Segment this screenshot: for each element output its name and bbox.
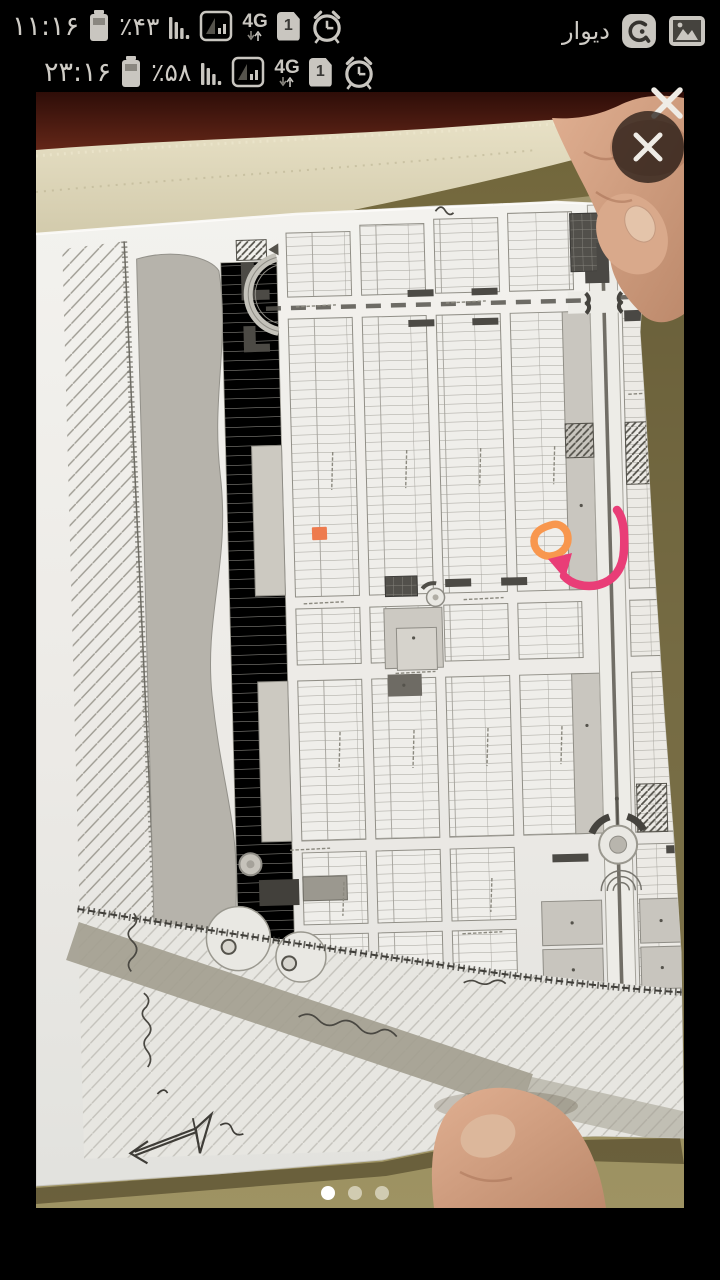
map-left-roundabout (239, 853, 262, 876)
data-arrows-icon (247, 31, 263, 41)
inner-sim2-signal-icon (231, 56, 265, 88)
inner-sim-slot-number: 1 (316, 63, 325, 81)
sim-card-icon: 1 (277, 12, 300, 41)
sim2-signal-icon (199, 10, 233, 42)
notification-app-label: ديوار (562, 17, 610, 45)
inner-alarm-clock-icon (341, 54, 377, 90)
inner-battery-percent: ٪۵۸ (151, 58, 191, 87)
network-type-label: 4G (242, 12, 267, 31)
carousel-indicator (321, 1186, 389, 1200)
carousel-dot-1[interactable] (321, 1186, 335, 1200)
battery-icon (88, 9, 110, 43)
inner-data-arrows-icon (279, 77, 295, 87)
carousel-dot-3[interactable] (375, 1186, 389, 1200)
sim-slot-number: 1 (284, 17, 293, 35)
inner-clock-time: ۲۳:۱۶ (44, 57, 111, 88)
inner-network-type-label: 4G (274, 58, 299, 77)
outer-status-bar: ۱۱:۱۶ ٪۴۳ 4G (0, 6, 720, 46)
divar-app-icon (621, 13, 657, 49)
highlighted-plot-annotation (312, 527, 327, 541)
inner-signal-bars-icon (200, 56, 222, 88)
battery-percent: ٪۴۳ (119, 12, 159, 41)
mobile-data-indicator: 4G (242, 12, 267, 41)
carousel-dot-2[interactable] (348, 1186, 362, 1200)
alarm-clock-icon (309, 8, 345, 44)
inner-mobile-data-indicator: 4G (274, 58, 299, 87)
close-button[interactable] (612, 111, 684, 183)
image-viewer-screen: ۱۱:۱۶ ٪۴۳ 4G (0, 0, 720, 1280)
inner-battery-icon (120, 55, 142, 89)
close-icon (632, 131, 664, 163)
gallery-notification-icon (668, 15, 706, 47)
photo-map-image[interactable] (36, 92, 684, 1208)
inner-screenshot-status-bar: ۲۳:۱۶ ٪۵۸ 4G (0, 53, 720, 91)
inner-sim-card-icon: 1 (309, 58, 332, 87)
signal-bars-icon (168, 10, 190, 42)
clock-time: ۱۱:۱۶ (12, 11, 79, 42)
